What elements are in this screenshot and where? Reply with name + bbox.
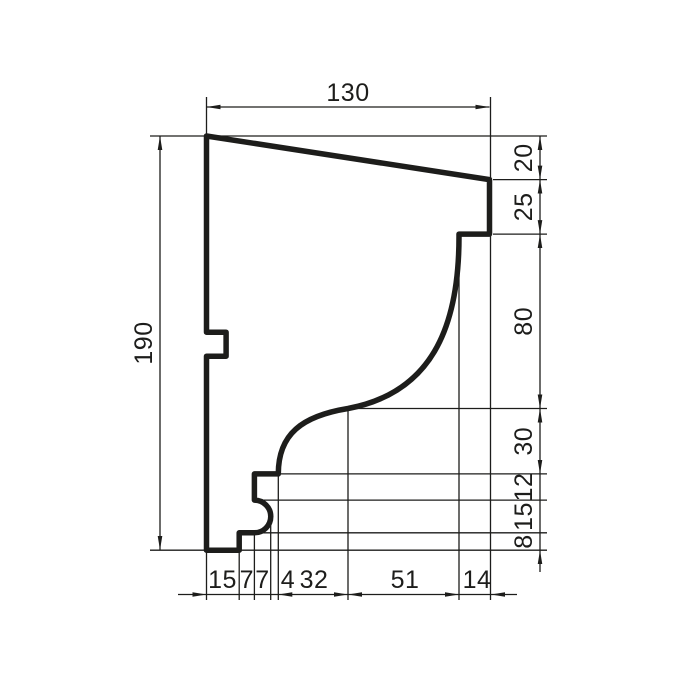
- dim-label-top: 130: [326, 79, 369, 107]
- dim-label-right-8: 8: [510, 534, 538, 548]
- dim-label-left: 190: [130, 321, 158, 364]
- dim-label-bottom-14: 14: [463, 566, 492, 594]
- technical-drawing: 130 190 20 25 80 30 12 15 8 15 7 7 4 32 …: [0, 0, 686, 686]
- dim-label-bottom-7b: 7: [255, 566, 269, 594]
- dim-label-right-12: 12: [510, 473, 538, 502]
- dim-label-bottom-4: 4: [281, 566, 295, 594]
- dim-label-bottom-32: 32: [300, 566, 329, 594]
- dim-label-bottom-7a: 7: [240, 566, 254, 594]
- dim-label-right-80: 80: [510, 307, 538, 336]
- dim-label-bottom-15: 15: [208, 566, 237, 594]
- dim-label-right-15: 15: [510, 502, 538, 531]
- dim-label-right-30: 30: [510, 427, 538, 456]
- dim-label-right-20: 20: [510, 143, 538, 172]
- dim-label-right-25: 25: [510, 192, 538, 221]
- dim-label-bottom-51: 51: [391, 566, 420, 594]
- drawing-canvas: 130 190 20 25 80 30 12 15 8 15 7 7 4 32 …: [0, 0, 686, 686]
